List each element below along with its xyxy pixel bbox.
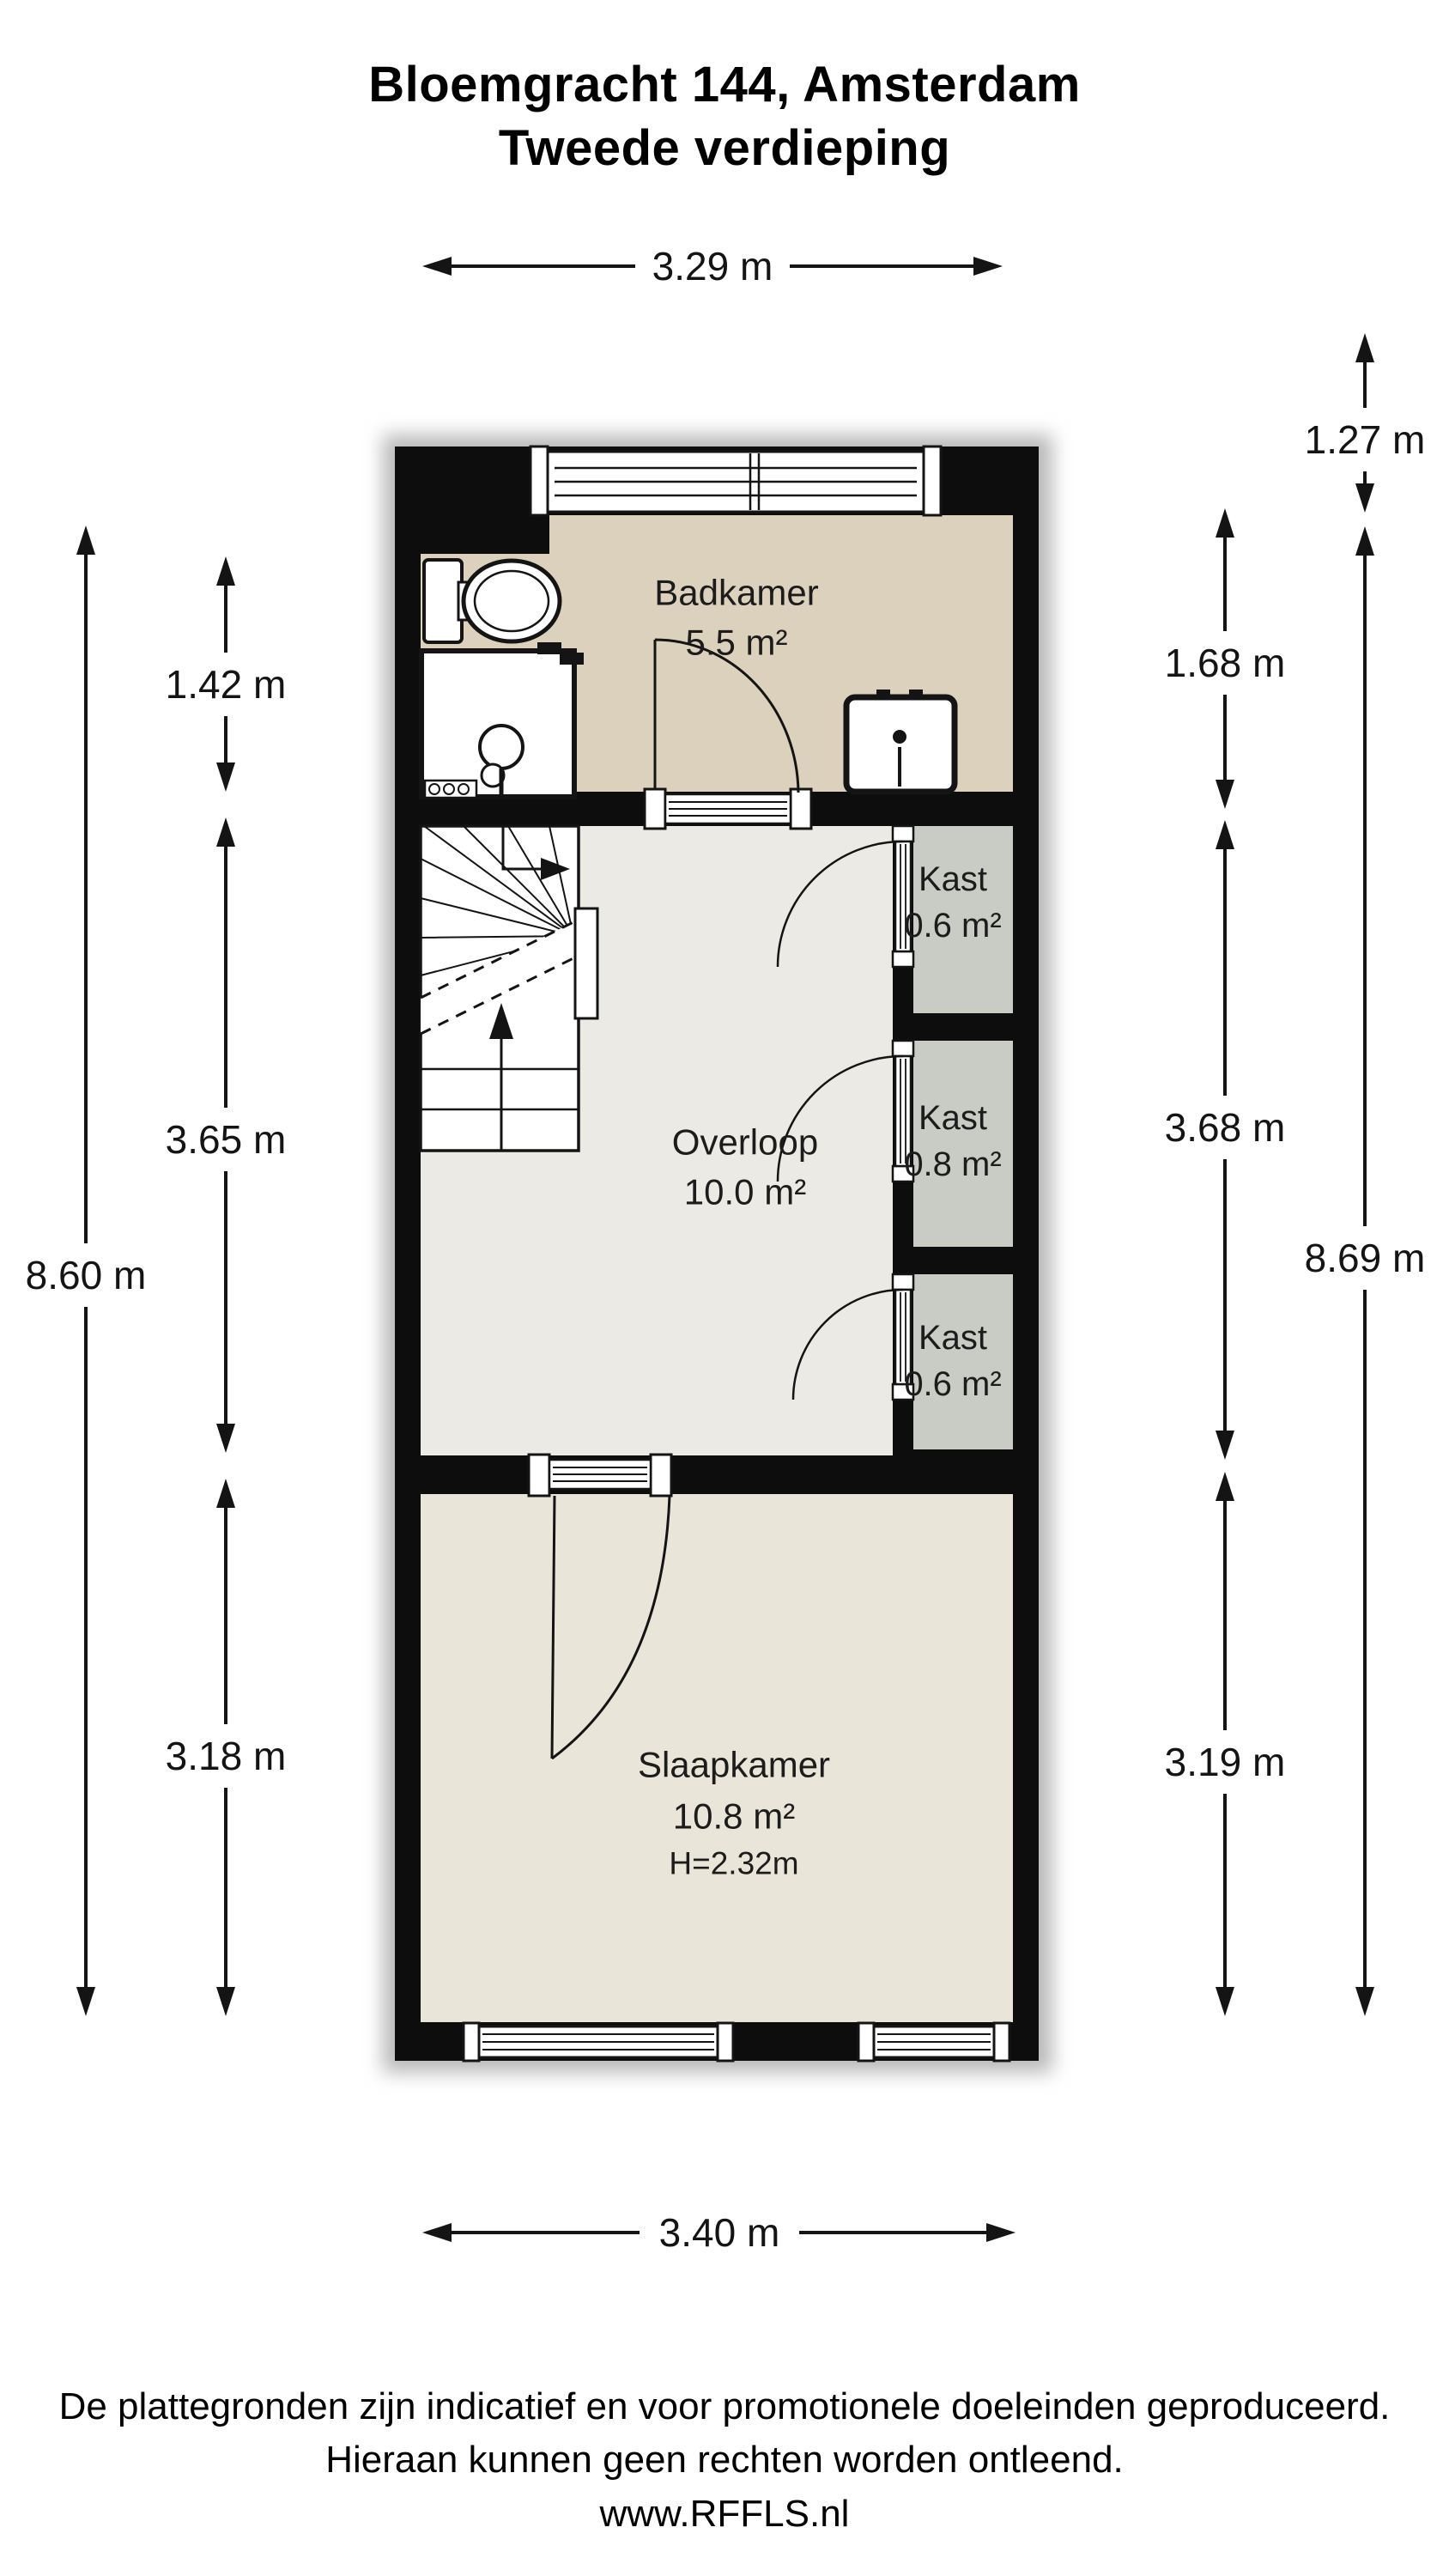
toilet-icon xyxy=(424,560,560,642)
dimension-label: 3.40 m xyxy=(659,2210,780,2255)
dimension-left-overloop: 3.65 m xyxy=(166,817,287,1453)
arrowhead-down xyxy=(216,1987,235,2016)
washbasin-icon xyxy=(846,690,955,792)
door-jamb xyxy=(651,1455,671,1496)
arrowhead-down xyxy=(76,1987,95,2016)
dimension-label: 1.42 m xyxy=(166,662,287,707)
arrowhead-up xyxy=(216,556,235,586)
wall-block xyxy=(395,447,549,554)
arrowhead-down xyxy=(1355,483,1374,513)
arrowhead-up xyxy=(1216,1472,1234,1501)
window-jamb xyxy=(718,2023,733,2061)
room-label-kast-boven: Kast xyxy=(919,860,987,898)
dimension-right-overloop: 3.68 m xyxy=(1165,820,1286,1460)
arrowhead-up xyxy=(216,1479,235,1508)
room-label-slaapkamer: Slaapkamer xyxy=(638,1745,830,1785)
dimension-left-badkamer: 1.42 m xyxy=(166,556,287,792)
window-jamb xyxy=(858,2023,874,2061)
window-jamb xyxy=(530,447,548,515)
dimension-label: 8.69 m xyxy=(1305,1236,1426,1280)
room-label-badkamer: Badkamer xyxy=(654,573,818,613)
arrowhead-up xyxy=(216,817,235,847)
arrowhead-up xyxy=(76,526,95,555)
room-label-kast-midden: Kast xyxy=(919,1099,987,1137)
window-badkamer xyxy=(530,447,941,515)
room-label-kast-onder: Kast xyxy=(919,1319,987,1357)
door-jamb xyxy=(645,789,665,829)
dimension-label: 3.68 m xyxy=(1165,1105,1286,1150)
arrowhead-down xyxy=(1355,1987,1374,2016)
dimension-left-slaapkamer: 3.18 m xyxy=(166,1479,287,2016)
arrowhead-up xyxy=(1216,820,1234,849)
dimension-label: 3.29 m xyxy=(652,244,773,289)
dimension-right-roof: 1.27 m xyxy=(1305,333,1426,513)
shower-icon xyxy=(421,642,584,798)
window-jamb xyxy=(994,2023,1009,2061)
arrowhead-left xyxy=(422,257,452,276)
room-label-overloop: Overloop xyxy=(672,1122,818,1163)
arrowhead-down xyxy=(1216,1431,1234,1460)
window-jamb xyxy=(924,447,941,515)
stair-handrail xyxy=(575,908,597,1018)
shower-door-hinge xyxy=(537,642,561,654)
staircase xyxy=(421,826,597,1151)
room-area-overloop: 10.0 m² xyxy=(684,1172,806,1212)
washbasin-tap xyxy=(876,690,890,698)
arrowhead-up xyxy=(1216,508,1234,538)
room-area-kast-midden: 0.8 m² xyxy=(904,1145,1001,1183)
kast-midden-floor xyxy=(913,1041,1013,1247)
disclaimer-website: www.RFFLS.nl xyxy=(0,2488,1449,2541)
dimension-label: 1.27 m xyxy=(1305,417,1426,462)
window-slaapkamer-right xyxy=(858,2023,1009,2061)
dimension-right-badkamer: 1.68 m xyxy=(1165,508,1286,809)
arrowhead-down xyxy=(216,1424,235,1453)
room-area-badkamer: 5.5 m² xyxy=(685,623,787,663)
arrowhead-up xyxy=(1355,333,1374,362)
dimension-label: 3.65 m xyxy=(166,1117,287,1162)
kast-onder-floor xyxy=(913,1274,1013,1449)
dimension-right-total: 8.69 m xyxy=(1305,526,1426,2016)
dimension-bottom-width: 3.40 m xyxy=(422,2210,1016,2255)
arrowhead-right xyxy=(973,257,1003,276)
toilet-tank xyxy=(424,560,462,642)
arrowhead-right xyxy=(986,2223,1016,2242)
dimension-label: 8.60 m xyxy=(26,1253,147,1297)
arrowhead-left xyxy=(422,2223,452,2242)
arrowhead-up xyxy=(1355,526,1374,556)
washbasin-drain xyxy=(893,730,906,744)
disclaimer-line1: De plattegronden zijn indicatief en voor… xyxy=(0,2380,1449,2433)
arrowhead-down xyxy=(1216,1987,1234,2016)
arrowhead-down xyxy=(216,762,235,792)
dimension-right-slaapkamer: 3.19 m xyxy=(1165,1472,1286,2016)
room-height-slaapkamer: H=2.32m xyxy=(669,1846,798,1881)
arrowhead-down xyxy=(1216,780,1234,809)
door-jamb xyxy=(893,826,913,841)
room-area-kast-onder: 0.6 m² xyxy=(904,1365,1001,1403)
dimension-top-width: 3.29 m xyxy=(422,244,1003,289)
floorplan-canvas: Badkamer 5.5 m² Overloop 10.0 m² Kast 0.… xyxy=(0,0,1449,2576)
floorplan-page: Bloemgracht 144, Amsterdam Tweede verdie… xyxy=(0,0,1449,2576)
room-area-slaapkamer: 10.8 m² xyxy=(673,1796,795,1837)
door-jamb xyxy=(791,789,811,829)
dimension-left-total: 8.60 m xyxy=(26,526,147,2016)
door-jamb xyxy=(893,1041,913,1056)
window-jamb xyxy=(464,2023,479,2061)
dimension-label: 3.19 m xyxy=(1165,1740,1286,1784)
shower-door-hinge xyxy=(560,653,584,665)
room-area-kast-boven: 0.6 m² xyxy=(904,907,1001,945)
window-slaapkamer-left xyxy=(464,2023,733,2061)
toilet-bowl xyxy=(464,561,560,641)
dimension-label: 1.68 m xyxy=(1165,641,1286,685)
door-jamb xyxy=(529,1455,549,1496)
disclaimer: De plattegronden zijn indicatief en voor… xyxy=(0,2380,1449,2541)
washbasin-tap xyxy=(909,690,923,698)
shower-head xyxy=(480,726,523,769)
door-jamb xyxy=(893,1274,913,1290)
dimension-label: 3.18 m xyxy=(166,1734,287,1778)
door-jamb xyxy=(893,951,913,967)
disclaimer-line2: Hieraan kunnen geen rechten worden ontle… xyxy=(0,2433,1449,2487)
